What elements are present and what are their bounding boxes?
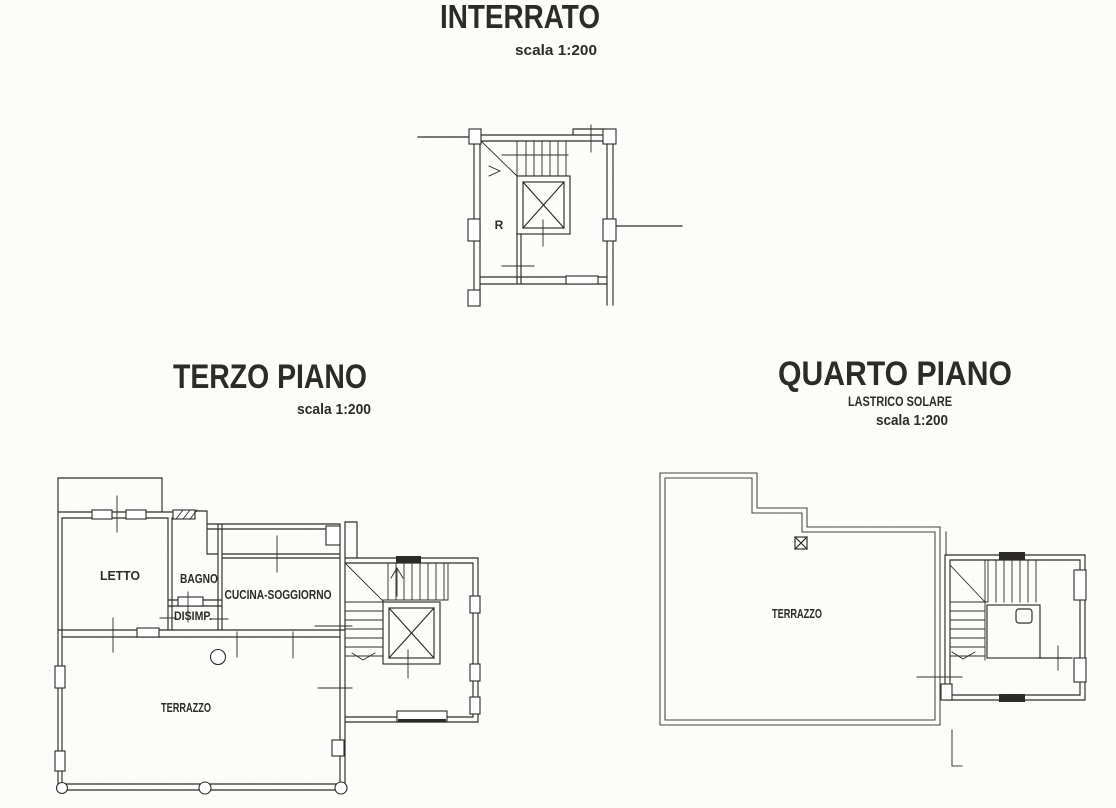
- interrato-dimension-ticks: [502, 125, 591, 266]
- window-marker: [92, 510, 112, 519]
- door-threshold-bar: [999, 694, 1025, 702]
- window-sill-bar: [398, 719, 446, 722]
- skylight-cross-icon: [795, 537, 807, 549]
- door-threshold-bar: [999, 552, 1025, 560]
- interrato-title: INTERRATO: [440, 0, 600, 35]
- window-marker: [566, 276, 598, 284]
- terzo-piano-plan: LETTO BAGNO CUCINA-SOGGIORNO DISIMP. TER…: [55, 478, 480, 794]
- room-label-cucina-soggiorno: CUCINA-SOGGIORNO: [225, 587, 332, 602]
- terzo-piano-scale-label: scala 1:200: [297, 401, 371, 418]
- room-label-terrazzo-quarto: TERRAZZO: [772, 606, 822, 621]
- quarto-stairwell-walls: [945, 555, 1085, 700]
- quarto-piano-subtitle: LASTRICO SOLARE: [848, 394, 952, 409]
- interrato-title-block: INTERRATO scala 1:200: [440, 0, 600, 59]
- pillar: [1074, 658, 1086, 682]
- column-circle: [57, 783, 68, 794]
- pillar: [603, 219, 616, 241]
- door-threshold-bar: [396, 556, 421, 563]
- interrato-scale-label: scala 1:200: [515, 42, 597, 59]
- pillar: [603, 129, 616, 144]
- column-circle: [199, 782, 211, 794]
- skylight-cross: [795, 537, 807, 549]
- column-circle: [211, 650, 226, 665]
- interrato-room-label-r: R: [495, 218, 504, 232]
- pillar: [468, 219, 480, 241]
- quarto-piano-scale-label: scala 1:200: [876, 412, 948, 429]
- quarto-piano-title: QUARTO PIANO: [778, 355, 1012, 393]
- quarto-stairs: [950, 560, 1058, 670]
- pillar: [470, 596, 480, 613]
- window-marker: [126, 510, 146, 519]
- quarto-piano-title-block: QUARTO PIANO LASTRICO SOLARE scala 1:200: [778, 355, 1012, 429]
- terzo-piano-title: TERZO PIANO: [173, 358, 367, 396]
- door-marker: [178, 597, 203, 606]
- quarto-shaft: [987, 605, 1040, 658]
- terzo-piano-title-block: TERZO PIANO scala 1:200: [173, 358, 371, 418]
- pillar: [470, 664, 480, 681]
- pillar: [1074, 570, 1086, 600]
- elevator-cross-icon: [389, 608, 434, 658]
- pillar: [941, 684, 952, 700]
- elevator-symbol-terzo: [383, 602, 440, 678]
- elevator-cross-icon: [523, 182, 564, 228]
- interrato-stairs: [481, 141, 568, 176]
- roof-hatch-icon: [1016, 609, 1032, 623]
- quarto-piano-plan: TERRAZZO: [660, 473, 1086, 766]
- room-label-bagno: BAGNO: [180, 571, 218, 586]
- pillar: [326, 526, 340, 545]
- pillar: [55, 666, 65, 688]
- pillar: [332, 740, 344, 756]
- terzo-walls: [58, 478, 478, 790]
- elevator-symbol-interrato: [517, 176, 570, 234]
- floorplan-drawing: INTERRATO scala 1:200 TERZO PIANO scala …: [0, 0, 1116, 808]
- column-circle: [335, 782, 347, 794]
- room-label-terrazzo: TERRAZZO: [161, 700, 211, 715]
- pillar: [470, 697, 480, 714]
- pillar: [468, 290, 480, 306]
- room-label-letto: LETTO: [100, 568, 140, 583]
- room-label-disimp: DISIMP.: [174, 609, 212, 623]
- hatched-window-marker: [173, 510, 197, 519]
- interrato-plan: R: [418, 125, 682, 306]
- terzo-stairs: [345, 563, 448, 660]
- window-marker: [137, 628, 159, 637]
- pillar: [469, 129, 481, 144]
- pillar: [55, 751, 65, 771]
